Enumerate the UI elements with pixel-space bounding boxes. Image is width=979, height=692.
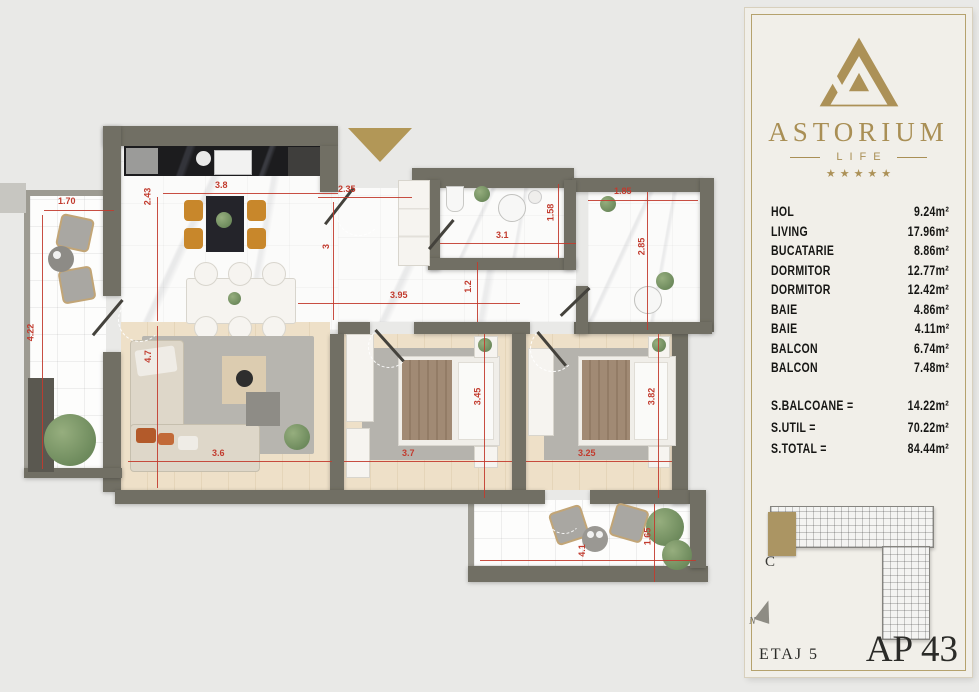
dimension-label: 1.58 xyxy=(546,204,555,222)
room-area-row: BAIE 4.11m² xyxy=(771,321,949,341)
dimension-label: 3.82 xyxy=(647,388,656,406)
divider-line xyxy=(897,157,927,158)
floor-label: ETAJ 5 xyxy=(759,646,819,664)
room-area-row: LIVING 17.96m² xyxy=(771,224,949,244)
bath2-plant xyxy=(600,196,616,212)
bedroom2-plant xyxy=(652,338,666,352)
dimension-label: 2.43 xyxy=(143,188,152,206)
room-area-row: DORMITOR 12.42m² xyxy=(771,282,949,302)
room-area-value: 4.11m² xyxy=(914,321,949,341)
balcony-table xyxy=(48,246,74,272)
room-area-value: 12.77m² xyxy=(908,263,949,283)
balcony-plant xyxy=(662,540,692,570)
bath2-sink xyxy=(634,286,662,314)
dining-chair xyxy=(194,262,218,286)
wall-segment xyxy=(338,322,370,334)
room-area-row: BUCATARIE 8.86m² xyxy=(771,243,949,263)
wall-segment xyxy=(700,178,714,332)
wall-segment xyxy=(590,490,690,504)
area-totals-list: S.BALCOANE = 14.22m² S.UTIL = 70.22m² S.… xyxy=(771,398,949,463)
kitchen-chair xyxy=(184,200,203,221)
wall-segment xyxy=(690,490,706,568)
bedroom2-blanket xyxy=(582,360,630,440)
sofa-pillow xyxy=(178,436,198,450)
apartment-number: AP 43 xyxy=(866,628,958,671)
wall-segment xyxy=(572,178,702,192)
room-area-row: BALCON 7.48m² xyxy=(771,360,949,380)
total-name: S.TOTAL = xyxy=(771,441,827,463)
room-area-value: 7.48m² xyxy=(914,360,949,380)
room-area-row: HOL 9.24m² xyxy=(771,204,949,224)
bedroom1-console xyxy=(346,428,370,478)
toilet xyxy=(446,186,464,212)
brand-logo: ASTORIUM LIFE ★★★★★ xyxy=(745,36,972,180)
room-name: BAIE xyxy=(771,302,797,322)
dimension-label: 4.1 xyxy=(578,544,587,557)
dimension-label: 4.7 xyxy=(144,350,153,363)
north-arrow-icon xyxy=(754,598,776,624)
bath1-sink xyxy=(498,194,526,222)
bedroom2-nightstand xyxy=(648,446,670,468)
dimension-line xyxy=(526,461,672,462)
dimension-label: 3.95 xyxy=(390,291,408,300)
dining-chair xyxy=(262,262,286,286)
brand-subtitle-row: LIFE xyxy=(745,151,972,163)
balcony-rail xyxy=(468,500,474,568)
dimension-line xyxy=(344,461,512,462)
kitchen-sink xyxy=(214,150,252,175)
room-name: LIVING xyxy=(771,224,808,244)
bath2-plant xyxy=(656,272,674,290)
total-value: 84.44m² xyxy=(908,441,949,463)
sofa-pillow xyxy=(134,345,177,376)
dimension-label: 1.65 xyxy=(643,528,652,546)
sofa-pillow-orange xyxy=(158,433,174,445)
dimension-line xyxy=(44,210,114,211)
dimension-line xyxy=(42,215,43,469)
bedroom1-plant xyxy=(478,338,492,352)
dimension-line xyxy=(128,461,332,462)
wall-segment xyxy=(428,258,576,270)
brand-name: ASTORIUM xyxy=(745,117,972,148)
north-label: N xyxy=(749,616,756,627)
bath1-deco xyxy=(528,190,542,204)
table-plant xyxy=(228,292,241,305)
balcony-plant xyxy=(44,414,96,466)
brand-subtitle: LIFE xyxy=(829,151,887,163)
room-area-value: 6.74m² xyxy=(914,341,949,361)
dimension-line xyxy=(477,262,478,322)
wall-segment xyxy=(414,322,530,334)
info-panel: ASTORIUM LIFE ★★★★★ HOL 9.24m² LIVING 17… xyxy=(745,8,972,677)
room-name: BALCON xyxy=(771,341,818,361)
total-name: S.BALCOANE = xyxy=(771,398,853,420)
bath1-plant xyxy=(474,186,490,202)
dimension-line xyxy=(647,192,648,330)
fridge xyxy=(126,148,158,174)
dimension-line xyxy=(558,184,559,258)
wall-segment xyxy=(320,146,338,192)
room-name: DORMITOR xyxy=(771,263,831,283)
dimension-label: 3.25 xyxy=(578,449,596,458)
room-name: BAIE xyxy=(771,321,797,341)
dimension-label: 3 xyxy=(322,244,331,249)
dimension-label: 3.8 xyxy=(215,181,228,190)
dimension-label: 1.70 xyxy=(58,197,76,206)
dimension-line xyxy=(318,197,412,198)
room-name: DORMITOR xyxy=(771,282,831,302)
room-area-value: 9.24m² xyxy=(914,204,949,224)
room-area-value: 4.86m² xyxy=(914,302,949,322)
kitchen-chair xyxy=(247,228,266,249)
hall-wardrobe xyxy=(398,180,430,266)
wall-segment xyxy=(330,334,344,492)
divider-line xyxy=(790,157,820,158)
kitchen-bowl xyxy=(196,151,211,166)
room-area-value: 17.96m² xyxy=(908,224,949,244)
balcony-table-plate xyxy=(596,531,603,538)
kitchen-chair xyxy=(184,228,203,249)
room-area-row: BAIE 4.86m² xyxy=(771,302,949,322)
living-plant xyxy=(284,424,310,450)
dimension-line xyxy=(484,334,485,498)
bedroom1-nightstand xyxy=(474,446,498,468)
balcony-table-plate xyxy=(587,531,594,538)
dimension-label: 1.85 xyxy=(614,187,632,196)
stove xyxy=(288,147,320,176)
dimension-line xyxy=(298,303,520,304)
dimension-label: 3.45 xyxy=(473,388,482,406)
area-total-row: S.BALCOANE = 14.22m² xyxy=(771,398,949,420)
wall-segment xyxy=(103,126,338,146)
entrance-arrow-icon xyxy=(348,128,412,162)
balcony-table-plate xyxy=(53,251,61,259)
brand-triangle-icon xyxy=(817,36,901,108)
neighbor-wall-stub xyxy=(0,183,26,213)
dimension-line xyxy=(658,334,659,498)
dimension-line xyxy=(654,504,655,582)
screenshot-stage: 1.703.82.353.953.11.853.63.73.254.14.222… xyxy=(0,0,979,692)
door-arc xyxy=(546,498,582,534)
wall-segment xyxy=(574,322,712,334)
wall-segment xyxy=(103,126,121,296)
dimension-line xyxy=(588,200,698,201)
area-total-row: S.UTIL = 70.22m² xyxy=(771,420,949,442)
room-name: HOL xyxy=(771,204,794,224)
wall-segment xyxy=(564,180,576,270)
dimension-line xyxy=(480,560,696,561)
five-stars-icon: ★★★★★ xyxy=(745,167,972,180)
room-area-list: HOL 9.24m² LIVING 17.96m² BUCATARIE 8.86… xyxy=(771,204,949,380)
table-plant xyxy=(216,212,232,228)
dimension-line xyxy=(157,197,158,321)
dimension-line xyxy=(163,193,338,194)
dimension-line xyxy=(157,326,158,488)
sofa-pillow-orange xyxy=(136,428,156,443)
dimension-label: 1.2 xyxy=(464,280,473,293)
room-name: BUCATARIE xyxy=(771,243,834,263)
total-value: 14.22m² xyxy=(908,398,949,420)
north-arrow: N xyxy=(757,600,773,622)
keyplan-section-label: C xyxy=(765,554,775,571)
dimension-label: 3.6 xyxy=(212,449,225,458)
dimension-line xyxy=(333,202,334,320)
room-name: BALCON xyxy=(771,360,818,380)
dining-chair xyxy=(228,262,252,286)
room-area-value: 8.86m² xyxy=(914,243,949,263)
dimension-label: 3.7 xyxy=(402,449,415,458)
wall-segment xyxy=(512,334,526,492)
dimension-line xyxy=(440,243,576,244)
dimension-label: 2.85 xyxy=(637,238,646,256)
bedroom1-blanket xyxy=(402,360,452,440)
area-total-row: S.TOTAL = 84.44m² xyxy=(771,441,949,463)
keyplan-wing-vertical xyxy=(882,546,930,640)
dimension-label: 4.22 xyxy=(26,324,35,342)
side-table xyxy=(246,392,280,426)
room-area-row: BALCON 6.74m² xyxy=(771,341,949,361)
kitchen-chair xyxy=(247,200,266,221)
door-arc xyxy=(118,298,162,342)
room-area-value: 12.42m² xyxy=(908,282,949,302)
room-area-row: DORMITOR 12.77m² xyxy=(771,263,949,283)
keyplan-highlighted-unit xyxy=(768,512,796,556)
wall-segment xyxy=(115,490,545,504)
coffee-tray xyxy=(236,370,253,387)
total-name: S.UTIL = xyxy=(771,420,816,442)
total-value: 70.22m² xyxy=(908,420,949,442)
dimension-label: 2.35 xyxy=(338,185,356,194)
dimension-label: 3.1 xyxy=(496,231,509,240)
